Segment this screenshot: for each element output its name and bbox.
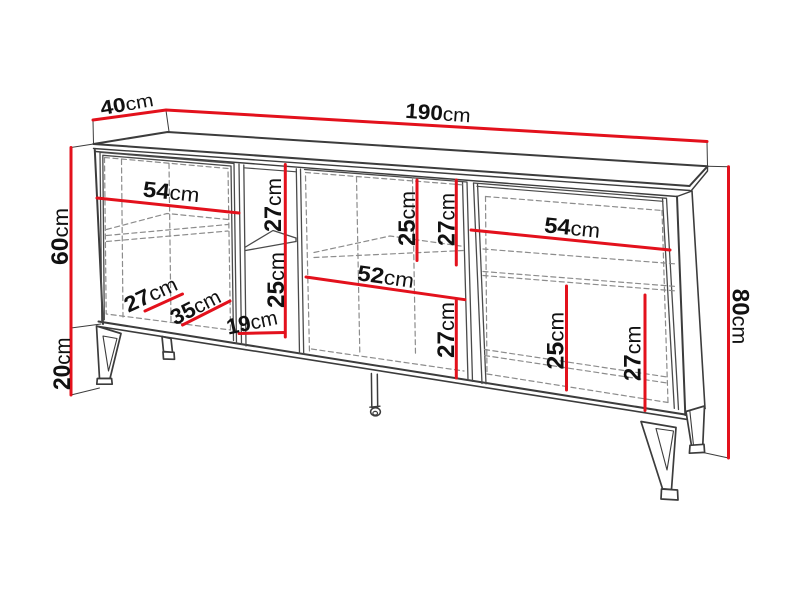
svg-text:190cm: 190cm [404, 100, 471, 128]
svg-text:25cm: 25cm [263, 252, 290, 308]
svg-text:60cm: 60cm [47, 208, 74, 265]
svg-text:25cm: 25cm [394, 191, 421, 246]
svg-text:27cm: 27cm [433, 302, 460, 358]
svg-text:27cm: 27cm [434, 193, 461, 246]
svg-text:27cm: 27cm [620, 326, 647, 382]
svg-text:80cm: 80cm [727, 289, 754, 345]
svg-text:20cm: 20cm [49, 338, 76, 391]
svg-text:27cm: 27cm [260, 178, 287, 232]
svg-text:25cm: 25cm [543, 312, 570, 370]
